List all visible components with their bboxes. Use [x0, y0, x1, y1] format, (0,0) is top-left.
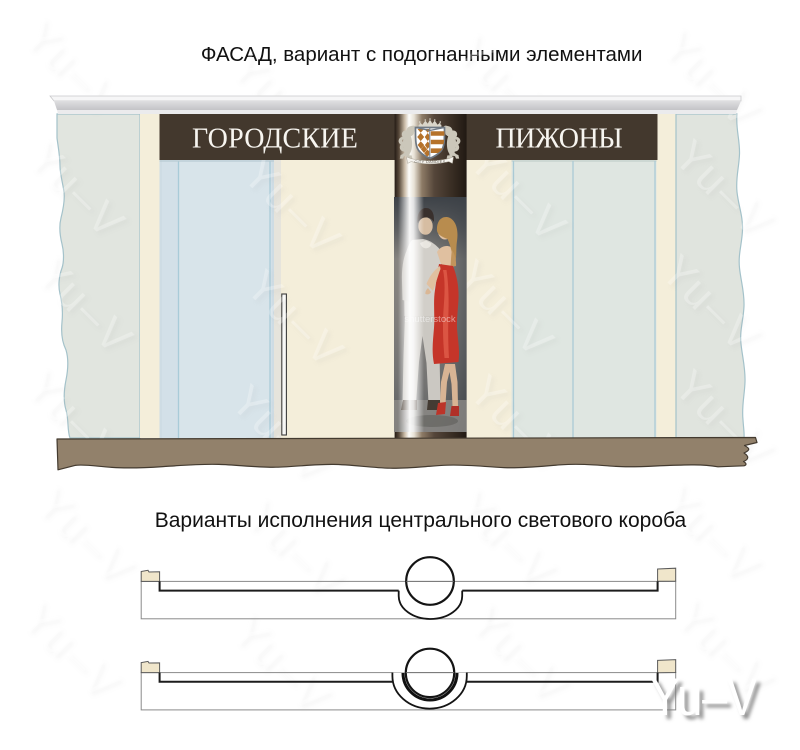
svg-text:ГОРОДСКИЕ: ГОРОДСКИЕ: [192, 124, 358, 155]
svg-text:CITY DANDIES: CITY DANDIES: [414, 160, 445, 164]
svg-text:Yu–V: Yu–V: [650, 668, 758, 727]
svg-text:ПИЖОНЫ: ПИЖОНЫ: [495, 124, 622, 155]
svg-text:shutterstock: shutterstock: [404, 314, 455, 325]
svg-text:Варианты исполнения центрально: Варианты исполнения центрального светово…: [155, 509, 687, 532]
